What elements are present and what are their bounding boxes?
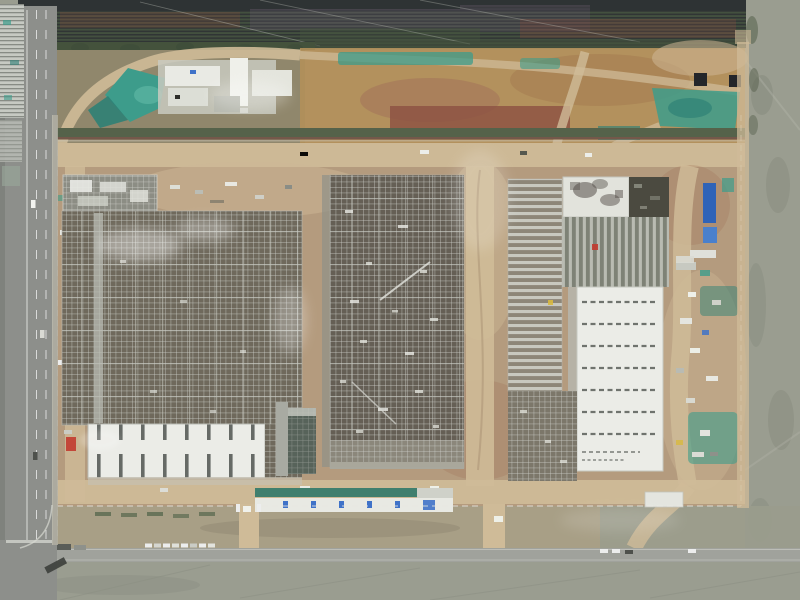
red-container: [66, 437, 76, 451]
right-mottled-building: [563, 177, 629, 217]
right-dark-section: [629, 177, 669, 217]
gate-house-east: [494, 516, 503, 522]
west-greenhouses: [0, 4, 24, 186]
building-annex: [276, 402, 316, 476]
screenshot-canvas: [0, 0, 800, 600]
east-boundary-road: [737, 42, 749, 508]
right-building-white-roof: [568, 287, 663, 471]
south-field: [0, 562, 800, 600]
rail-green-strip: [55, 128, 745, 142]
black-pit-1: [694, 73, 707, 86]
gate-road-east: [483, 504, 505, 550]
building-right-complex: [508, 177, 669, 481]
farmland-band: [18, 0, 746, 48]
building-middle: [322, 175, 464, 469]
left-sub-building: [63, 175, 157, 211]
blue-temp-building-2: [703, 227, 717, 243]
aerial-photo: [0, 0, 800, 600]
concrete-pad: [645, 492, 683, 507]
teal-strip-mid: [338, 52, 473, 65]
gate-house-west: [243, 506, 251, 512]
left-building-white-roof: [88, 424, 265, 478]
blue-temp-building-1: [703, 183, 716, 223]
site-offices: [255, 488, 453, 512]
